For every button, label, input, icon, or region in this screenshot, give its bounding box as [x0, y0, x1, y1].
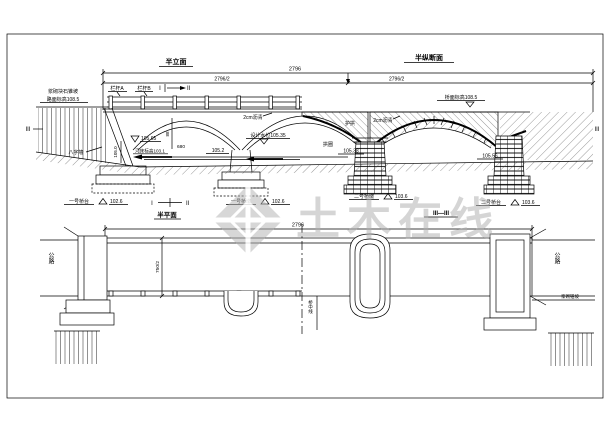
label-deck-elevation-right: 桥面标高108.5 [445, 94, 478, 101]
deck-elevation-mark: 桥面标高108.5 [437, 94, 485, 107]
label-arch-elevation: 105.38 [343, 149, 359, 155]
support-labels: 一号桥台 102.6 一号桥墩 102.6 二号桥墩 103.6 二号桥台 10… [64, 193, 540, 206]
dim-total-length: 2796 [289, 67, 301, 73]
plan-view: 2796 公路 公路 750/2 [40, 223, 595, 367]
section-mark-2: II [187, 86, 191, 92]
label-springing-elevation: 105.56 [482, 154, 498, 160]
label-slope-protection: 浆砌块石锥坡 [48, 88, 78, 95]
cad-drawing-stage: 半立面 半纵断面 2796 2796/2 2796/2 [0, 0, 610, 432]
dim-arch-span: 680 [177, 144, 185, 150]
title-half-plan: 半平面 [157, 210, 177, 219]
elev-abutment-1: 102.6 [110, 199, 123, 205]
section-marker-bottom: I II [151, 198, 190, 207]
plan-mark-1: I [151, 201, 153, 207]
label-arch-ring: 拱圈 [323, 141, 333, 148]
riverbed-mark: 河床标高103.1 [133, 148, 172, 160]
label-railing-a: 栏杆A [110, 85, 124, 92]
title-half-longitudinal-section: 半纵断面 [415, 53, 443, 62]
label-asphalt-left: 2cm沥青 [243, 114, 262, 121]
label-centerline: 桥中线 [308, 299, 314, 314]
elevation-view: 半立面 半纵断面 2796 2796/2 2796/2 [25, 53, 599, 219]
plan-pier-2 [350, 234, 390, 318]
label-abutment-2: 二号桥台 [481, 199, 501, 206]
label-protective-arch: 护拱 [345, 120, 355, 127]
design-water-level-mark: 设计水位105.35 [246, 132, 290, 144]
label-flood-level: 105.65 [141, 136, 157, 142]
section-mark-3-left: III [25, 127, 30, 133]
label-pier-2: 二号桥墩 [354, 193, 374, 200]
plan-road-right [532, 240, 595, 300]
label-road-right: 公路 [553, 252, 560, 265]
label-wing-wall: 八字墙 [68, 149, 83, 156]
label-design-water-level: 设计水位105.35 [250, 132, 286, 139]
label-pier-1: 一号桥墩 [231, 198, 251, 205]
dim-wing-height: 105.0 [113, 146, 118, 158]
elev-pier-2: 103.6 [395, 194, 408, 200]
plan-left-abutment [54, 227, 114, 364]
plan-deck [105, 238, 532, 296]
bridge-drawing-svg: 半立面 半纵断面 2796 2796/2 2796/2 [0, 0, 610, 432]
label-road-elevation-left: 路面标高108.5 [47, 96, 80, 103]
section-mark-3-right: III [594, 127, 599, 133]
section-marker-top: I II [159, 84, 191, 92]
title-section-3-3: III—III [433, 211, 449, 217]
plan-pier-1 [224, 291, 258, 316]
plan-dim-half-width: 750/2 [155, 261, 161, 273]
label-asphalt-right: 2cm沥青 [373, 117, 392, 124]
elev-pier-1: 102.6 [272, 199, 285, 205]
label-railing-b: 栏杆B [137, 85, 151, 92]
dim-half-left: 2796/2 [214, 77, 230, 83]
dim-half-right: 2796/2 [389, 77, 405, 83]
label-bank-note: 浆砌锥坡 [561, 293, 579, 300]
title-half-elevation: 半立面 [166, 57, 187, 66]
flood-level-mark: 105.65 [131, 136, 161, 142]
dim-arch-rise: 88 [165, 131, 170, 137]
plan-mark-2: II [186, 201, 190, 207]
section-mark-1: I [159, 86, 161, 92]
label-water-elevation: 105.2 [212, 148, 225, 154]
label-road-left: 公路 [47, 252, 54, 265]
elev-abutment-2: 103.6 [522, 200, 535, 206]
label-abutment-1: 一号桥台 [69, 198, 89, 205]
